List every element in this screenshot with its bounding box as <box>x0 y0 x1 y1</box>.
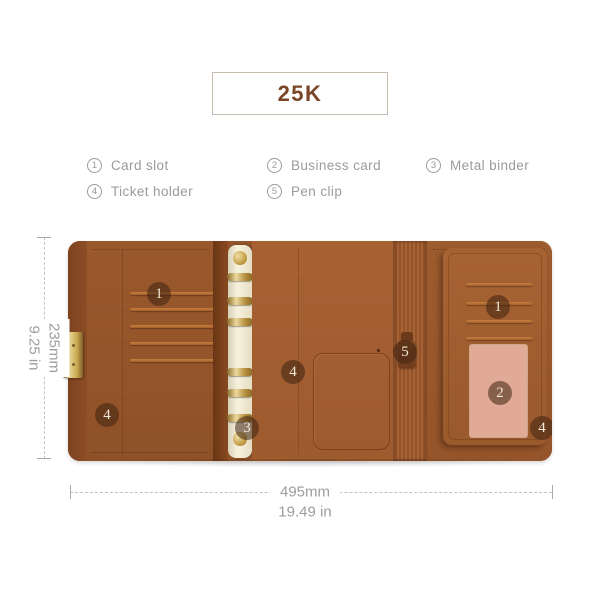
legend-label: Metal binder <box>450 158 529 173</box>
binder-rivet <box>233 251 247 265</box>
height-dimension-label: 235mm 9.25 in <box>19 319 70 377</box>
stitch-line <box>298 249 299 454</box>
callout-1-card-slot-left: 1 <box>147 282 171 306</box>
callout-4-ticket-holder-right: 4 <box>530 416 552 440</box>
dimension-tick <box>37 237 51 238</box>
height-mm: 235mm <box>44 323 64 373</box>
legend-item-pen-clip: 5 Pen clip <box>267 182 342 200</box>
circled-number-icon: 3 <box>426 158 441 173</box>
card-slot-line <box>466 320 532 323</box>
width-in: 19.49 in <box>278 504 331 521</box>
circled-number-icon: 1 <box>87 158 102 173</box>
callout-4-ticket-holder-left: 4 <box>95 403 119 427</box>
circled-number-icon: 2 <box>267 158 282 173</box>
callout-2-business-card: 2 <box>488 381 512 405</box>
circled-number-icon: 5 <box>267 184 282 199</box>
size-title: 25K <box>278 81 323 107</box>
circled-number-icon: 4 <box>87 184 102 199</box>
spine-fold <box>213 241 228 461</box>
binder-ring <box>227 273 253 281</box>
callout-1-card-slot-right: 1 <box>486 295 510 319</box>
card-slot-line <box>466 283 532 286</box>
callout-4-ticket-holder-center: 4 <box>281 360 305 384</box>
binder-product-image: 1 2 1 4 3 4 5 4 <box>68 241 552 461</box>
ticket-pocket <box>313 353 390 450</box>
dimension-tick <box>37 458 51 459</box>
stitch-line <box>92 249 210 250</box>
card-wallet-flap: 1 2 <box>443 248 547 445</box>
legend-item-metal-binder: 3 Metal binder <box>426 156 529 174</box>
binder-ring <box>227 297 253 305</box>
snap-dot <box>377 349 380 352</box>
width-mm: 495mm <box>270 484 340 501</box>
stitch-line <box>92 452 210 453</box>
legend-label: Ticket holder <box>111 184 193 199</box>
binder-ring <box>227 368 253 376</box>
drop-shadow <box>76 459 544 468</box>
stitch-line <box>122 249 123 454</box>
dimension-tick <box>552 485 553 499</box>
height-in: 9.25 in <box>25 323 45 373</box>
legend-label: Business card <box>291 158 381 173</box>
legend-item-ticket-holder: 4 Ticket holder <box>87 182 193 200</box>
binder-ring <box>227 318 253 326</box>
legend-item-card-slot: 1 Card slot <box>87 156 169 174</box>
callout-3-metal-binder: 3 <box>235 416 259 440</box>
legend-label: Pen clip <box>291 184 342 199</box>
dimension-tick <box>70 485 71 499</box>
size-title-box: 25K <box>212 72 388 115</box>
binder-ring <box>227 389 253 397</box>
callout-5-pen-clip: 5 <box>393 340 417 364</box>
legend-label: Card slot <box>111 158 169 173</box>
product-spec-image: 25K 1 Card slot 2 Business card 3 Metal … <box>0 0 600 600</box>
left-card-slot-panel <box>87 241 213 461</box>
legend-item-business-card: 2 Business card <box>267 156 381 174</box>
card-slot-line <box>466 337 532 340</box>
